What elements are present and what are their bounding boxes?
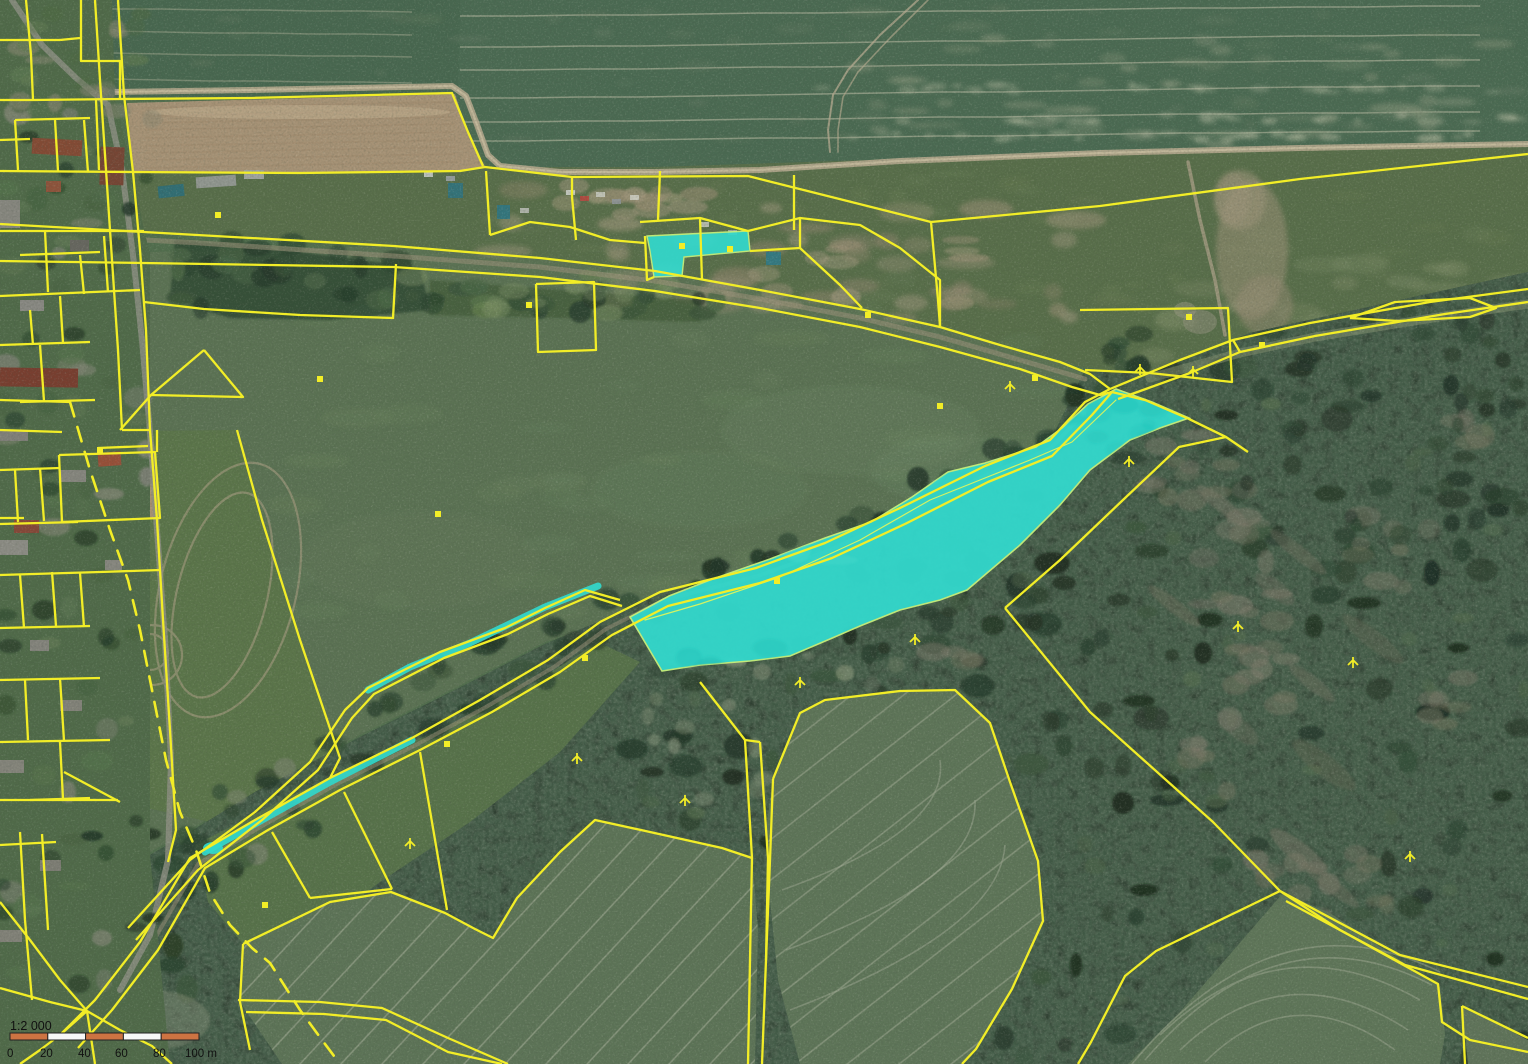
svg-text:20: 20 xyxy=(40,1048,53,1060)
svg-text:0: 0 xyxy=(7,1048,13,1060)
svg-text:80: 80 xyxy=(153,1048,166,1060)
svg-text:40: 40 xyxy=(78,1048,91,1060)
svg-text:100 m: 100 m xyxy=(185,1048,217,1060)
svg-text:60: 60 xyxy=(115,1048,128,1060)
svg-text:1:2 000: 1:2 000 xyxy=(10,1019,52,1033)
